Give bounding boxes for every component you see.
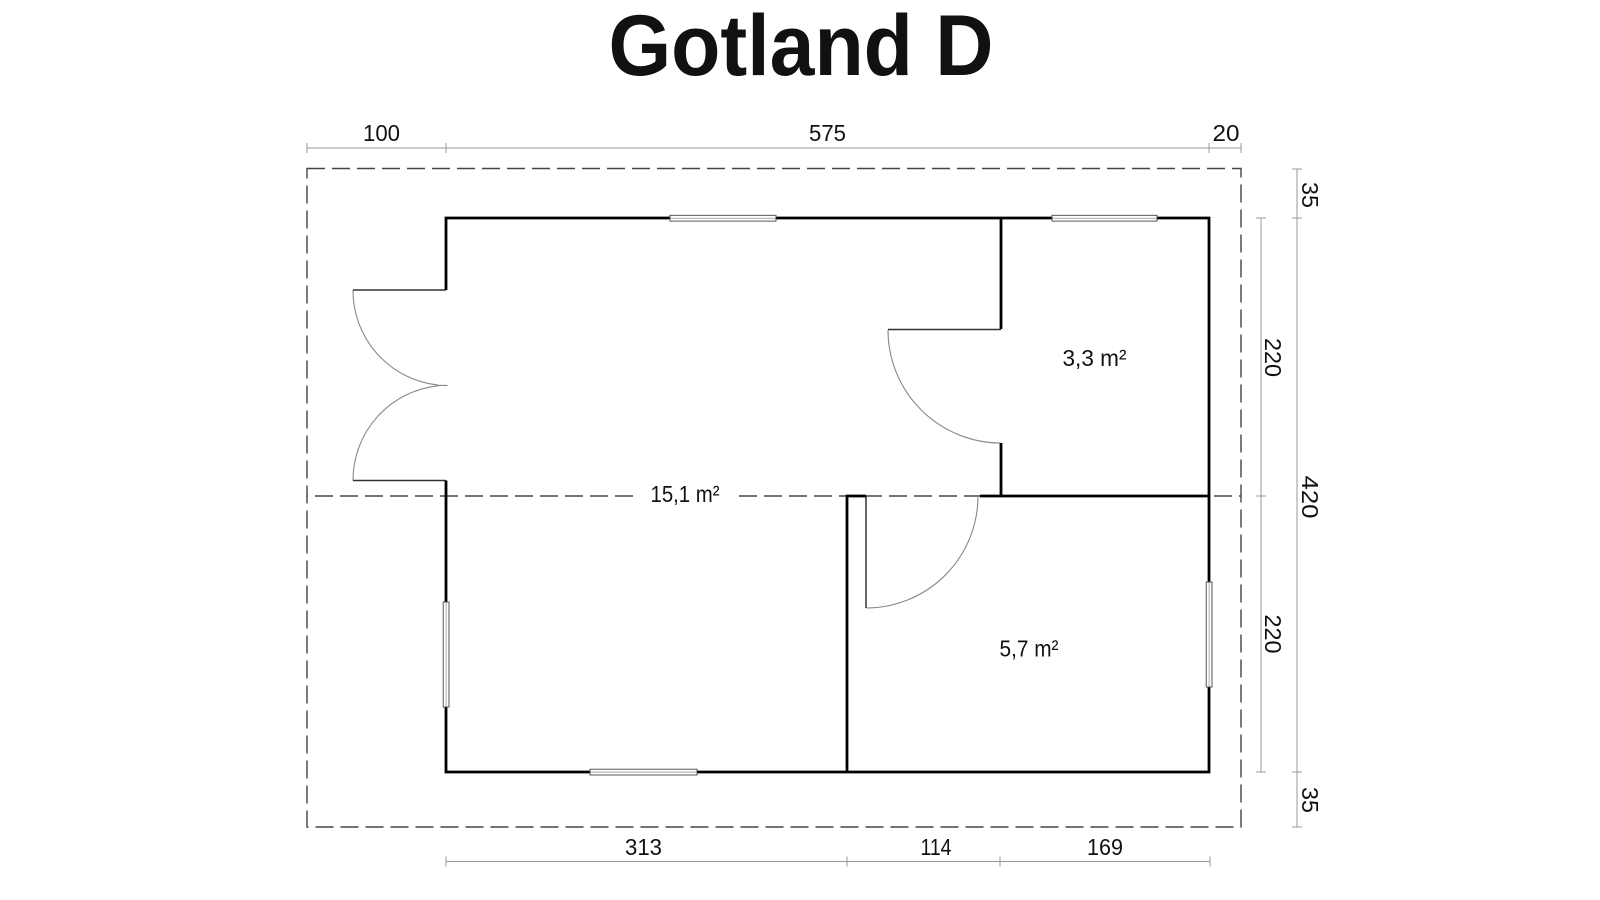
svg-text:20: 20 bbox=[1213, 120, 1240, 146]
svg-text:100: 100 bbox=[363, 120, 400, 146]
svg-text:169: 169 bbox=[1087, 834, 1123, 860]
svg-text:313: 313 bbox=[625, 834, 662, 860]
svg-text:35: 35 bbox=[1297, 182, 1323, 208]
svg-text:3,3 m²: 3,3 m² bbox=[1063, 345, 1127, 371]
svg-text:220: 220 bbox=[1260, 615, 1286, 654]
svg-text:220: 220 bbox=[1260, 338, 1286, 377]
svg-text:420: 420 bbox=[1297, 476, 1323, 519]
svg-text:Gotland D: Gotland D bbox=[609, 0, 994, 94]
svg-text:15,1 m²: 15,1 m² bbox=[651, 481, 720, 507]
svg-text:114: 114 bbox=[921, 834, 952, 860]
svg-text:575: 575 bbox=[809, 120, 846, 146]
svg-text:35: 35 bbox=[1297, 787, 1323, 813]
svg-text:5,7 m²: 5,7 m² bbox=[1000, 636, 1059, 662]
